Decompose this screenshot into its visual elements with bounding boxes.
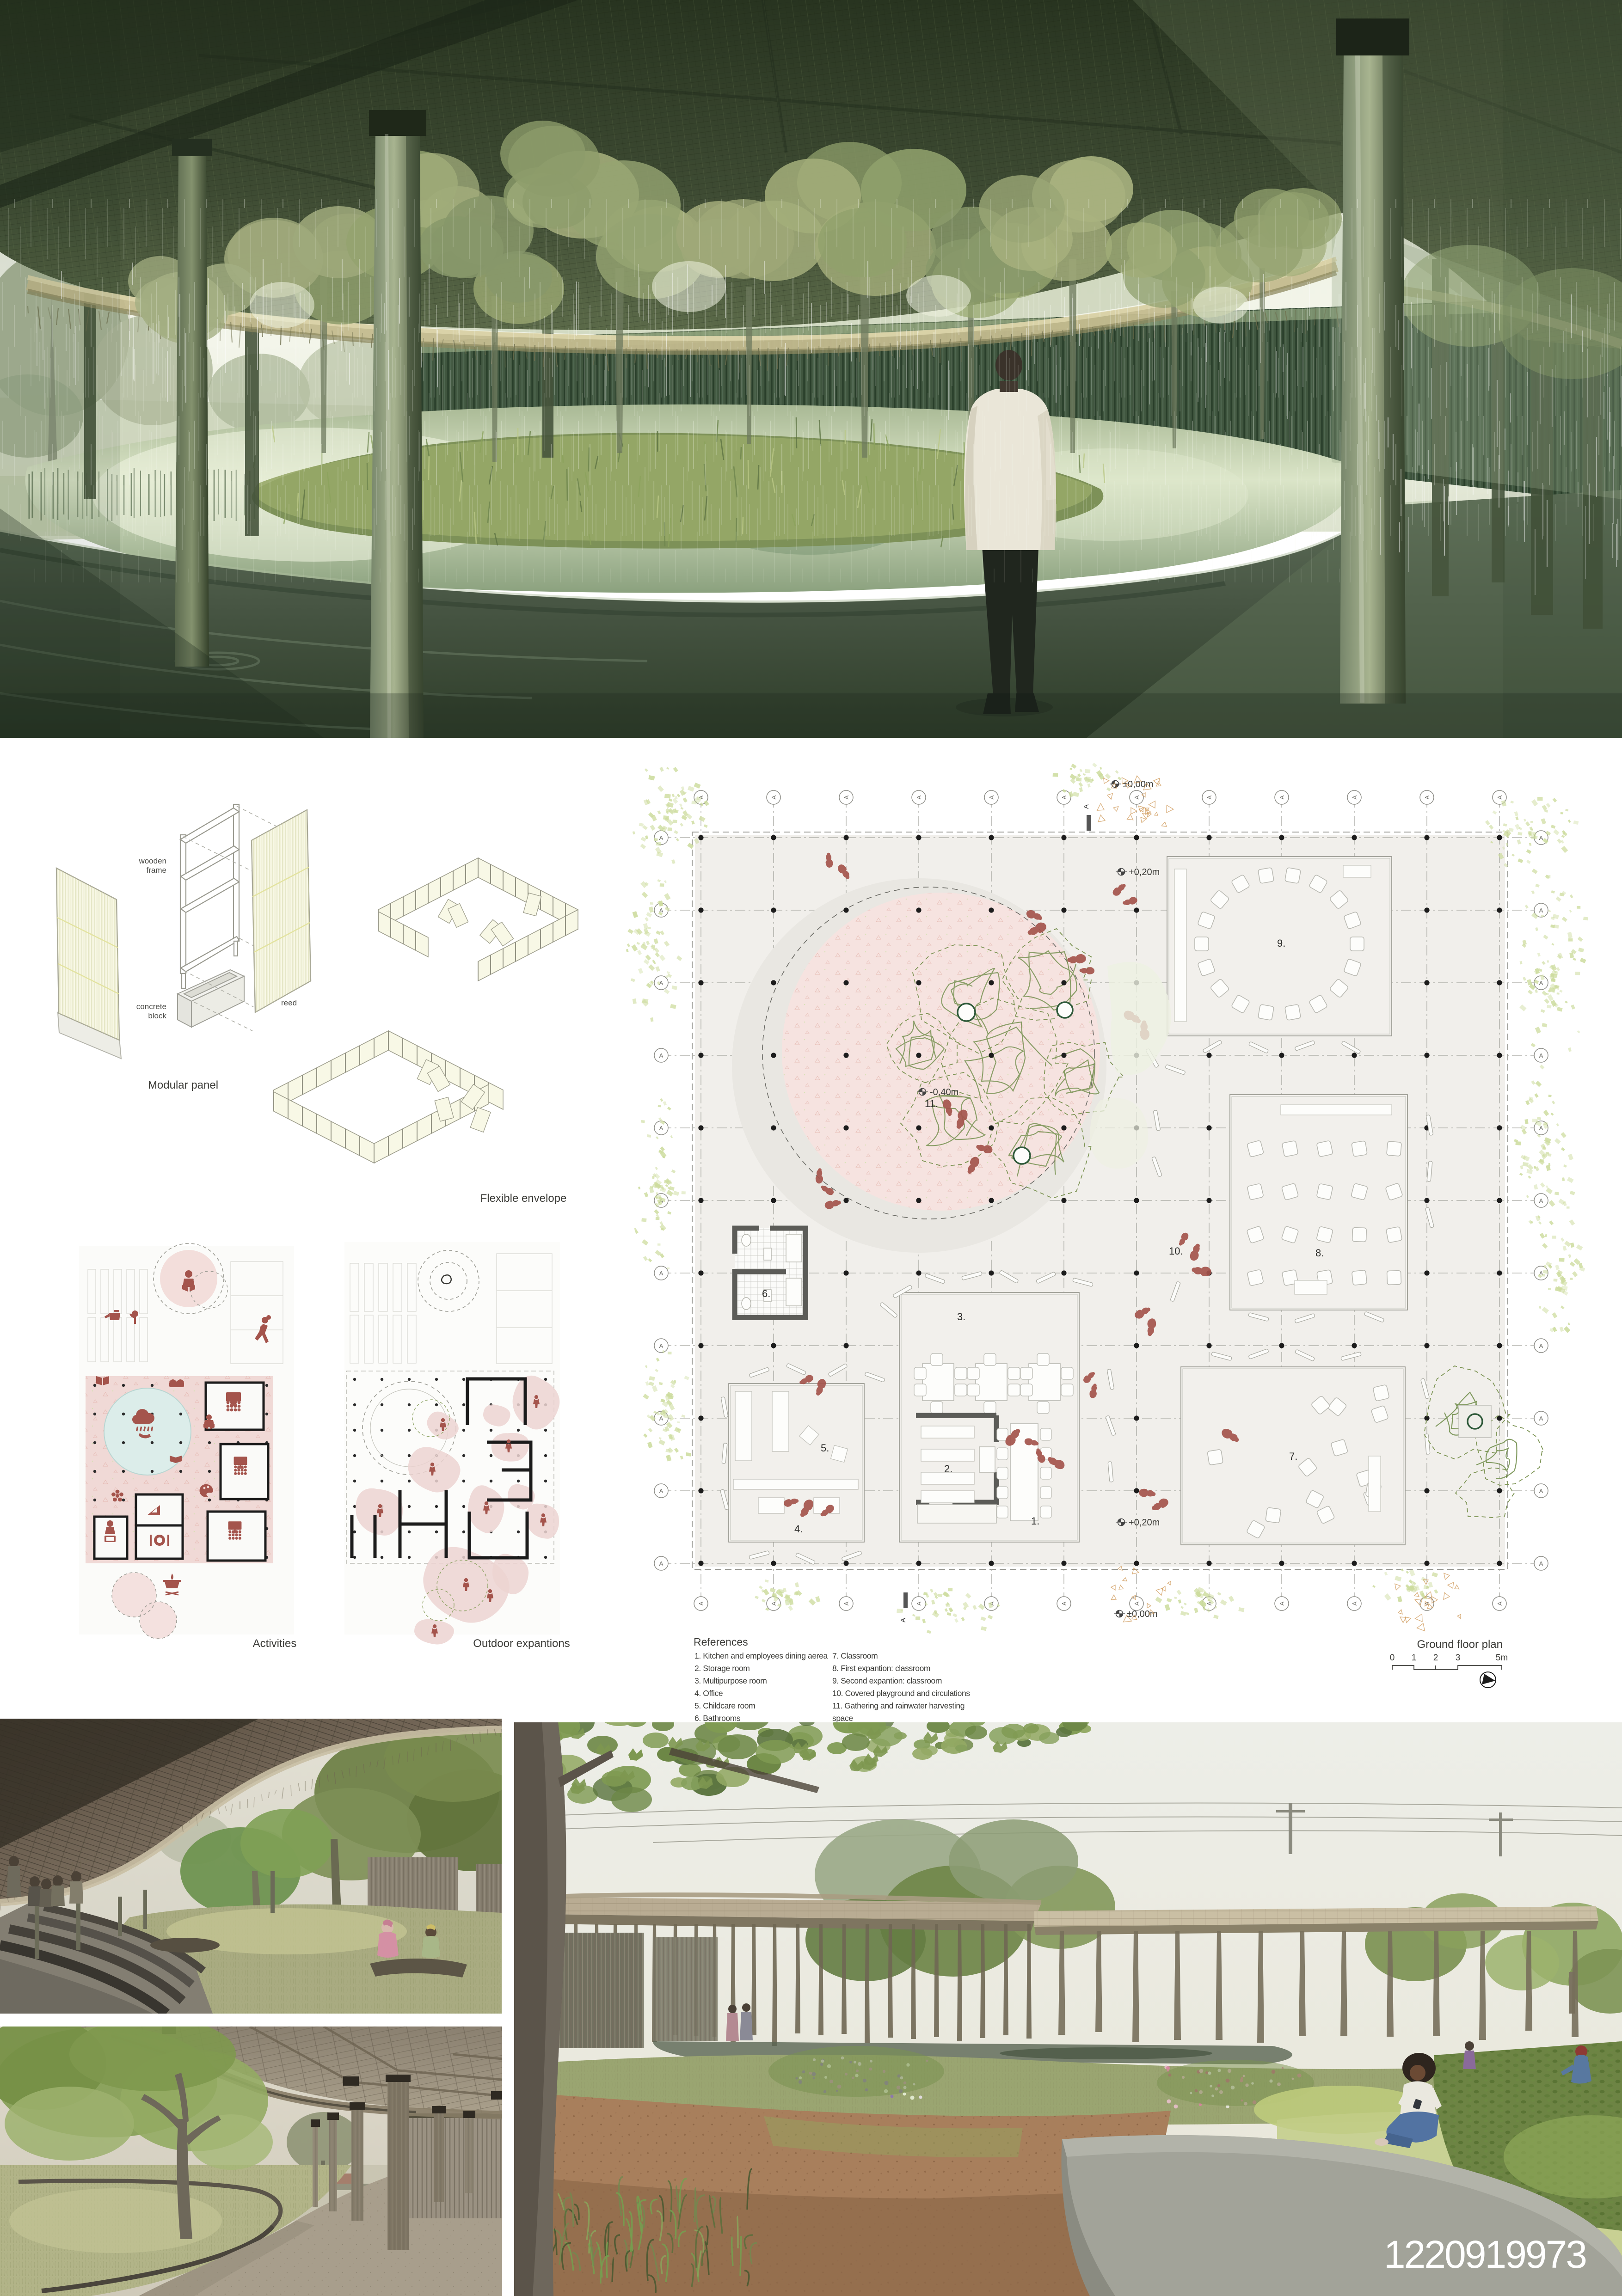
- svg-text:concrete: concrete: [136, 1002, 166, 1011]
- svg-text:0: 0: [1390, 1653, 1395, 1663]
- svg-text:A: A: [1539, 980, 1543, 986]
- svg-text:A: A: [659, 1125, 664, 1132]
- svg-text:+0,20m: +0,20m: [1129, 867, 1160, 877]
- svg-text:A: A: [1496, 1601, 1503, 1605]
- svg-text:A: A: [659, 1342, 664, 1349]
- svg-text:A: A: [659, 980, 664, 986]
- svg-text:4. Office: 4. Office: [694, 1689, 723, 1698]
- svg-text:7.: 7.: [1289, 1451, 1297, 1462]
- svg-text:A: A: [988, 795, 995, 799]
- svg-text:A: A: [843, 1601, 850, 1605]
- svg-text:A: A: [770, 1601, 777, 1605]
- svg-text:+0,20m: +0,20m: [1129, 1518, 1160, 1528]
- svg-text:3.: 3.: [957, 1311, 965, 1322]
- svg-text:9. Second expantion: classroom: 9. Second expantion: classroom: [832, 1676, 942, 1685]
- svg-text:A: A: [659, 1415, 664, 1422]
- svg-text:11.: 11.: [925, 1098, 938, 1109]
- svg-text:A: A: [1351, 1601, 1358, 1605]
- svg-text:7. Classroom: 7. Classroom: [832, 1651, 878, 1660]
- svg-text:6.: 6.: [762, 1288, 770, 1299]
- svg-text:A: A: [659, 1270, 664, 1277]
- svg-text:A: A: [659, 1052, 664, 1059]
- svg-text:References: References: [694, 1636, 748, 1648]
- svg-text:A: A: [1539, 1052, 1543, 1059]
- svg-text:A: A: [915, 1601, 922, 1605]
- svg-text:A: A: [1539, 834, 1543, 841]
- svg-text:wooden: wooden: [138, 857, 166, 865]
- svg-text:11. Gathering and rainwater ha: 11. Gathering and rainwater harvesting: [832, 1701, 965, 1710]
- svg-text:A: A: [1539, 1415, 1543, 1422]
- svg-text:space: space: [832, 1714, 853, 1722]
- svg-text:Modular panel: Modular panel: [148, 1079, 218, 1091]
- svg-text:Flexible envelope: Flexible envelope: [480, 1192, 567, 1205]
- svg-text:2.: 2.: [944, 1463, 952, 1475]
- svg-text:8.: 8.: [1315, 1247, 1324, 1259]
- svg-text:A: A: [1539, 1342, 1543, 1349]
- svg-text:10. Covered playground and cir: 10. Covered playground and circulations: [832, 1689, 970, 1698]
- svg-text:A: A: [659, 834, 664, 841]
- svg-text:A: A: [1539, 1197, 1543, 1204]
- svg-text:A: A: [698, 1601, 705, 1605]
- svg-text:reed: reed: [281, 998, 297, 1007]
- svg-text:A: A: [1133, 795, 1140, 799]
- svg-text:A: A: [1278, 1601, 1285, 1605]
- svg-text:frame: frame: [147, 866, 166, 875]
- svg-text:3: 3: [1456, 1653, 1461, 1663]
- svg-text:A: A: [1061, 1601, 1068, 1605]
- svg-text:3. Multipurpose room: 3. Multipurpose room: [694, 1676, 767, 1685]
- svg-text:A: A: [899, 1618, 907, 1623]
- svg-text:A: A: [1133, 1601, 1140, 1605]
- svg-text:A: A: [1496, 795, 1503, 799]
- svg-text:1: 1: [1412, 1653, 1417, 1663]
- svg-text:5m: 5m: [1496, 1653, 1508, 1663]
- svg-text:8. First expantion: classroom: 8. First expantion: classroom: [832, 1664, 930, 1673]
- svg-text:1.: 1.: [1031, 1515, 1039, 1527]
- svg-text:A: A: [1278, 795, 1285, 799]
- svg-text:±0,00m: ±0,00m: [1127, 1609, 1158, 1619]
- svg-text:2: 2: [1433, 1653, 1438, 1663]
- svg-text:A: A: [659, 1560, 664, 1567]
- svg-text:A: A: [770, 795, 777, 799]
- svg-text:10.: 10.: [1169, 1245, 1183, 1257]
- svg-text:A: A: [1351, 795, 1358, 799]
- svg-text:A: A: [1082, 804, 1090, 809]
- svg-text:A: A: [843, 795, 850, 799]
- svg-text:5. Childcare room: 5. Childcare room: [694, 1701, 755, 1710]
- svg-text:A: A: [1539, 1488, 1543, 1494]
- svg-text:A: A: [1424, 795, 1431, 799]
- svg-text:A: A: [915, 795, 922, 799]
- svg-text:2. Storage room: 2. Storage room: [694, 1664, 750, 1673]
- svg-text:A: A: [1206, 795, 1213, 799]
- svg-text:A: A: [1539, 1560, 1543, 1567]
- svg-text:1220919973: 1220919973: [1384, 2233, 1586, 2276]
- svg-text:5.: 5.: [821, 1442, 829, 1454]
- svg-text:A: A: [1061, 795, 1068, 799]
- svg-text:Ground floor plan: Ground floor plan: [1417, 1638, 1503, 1651]
- svg-text:Activities: Activities: [253, 1637, 297, 1650]
- svg-text:A: A: [1539, 907, 1543, 914]
- svg-text:1. Kitchen and employees dinin: 1. Kitchen and employees dining aerea: [694, 1651, 828, 1660]
- svg-text:A: A: [659, 1488, 664, 1494]
- svg-text:-0,40m: -0,40m: [930, 1087, 958, 1097]
- svg-text:4.: 4.: [794, 1523, 803, 1535]
- svg-text:Outdoor expantions: Outdoor expantions: [473, 1637, 570, 1650]
- svg-text:6. Bathrooms: 6. Bathrooms: [694, 1714, 741, 1722]
- svg-text:9.: 9.: [1277, 937, 1285, 949]
- svg-text:block: block: [148, 1011, 166, 1020]
